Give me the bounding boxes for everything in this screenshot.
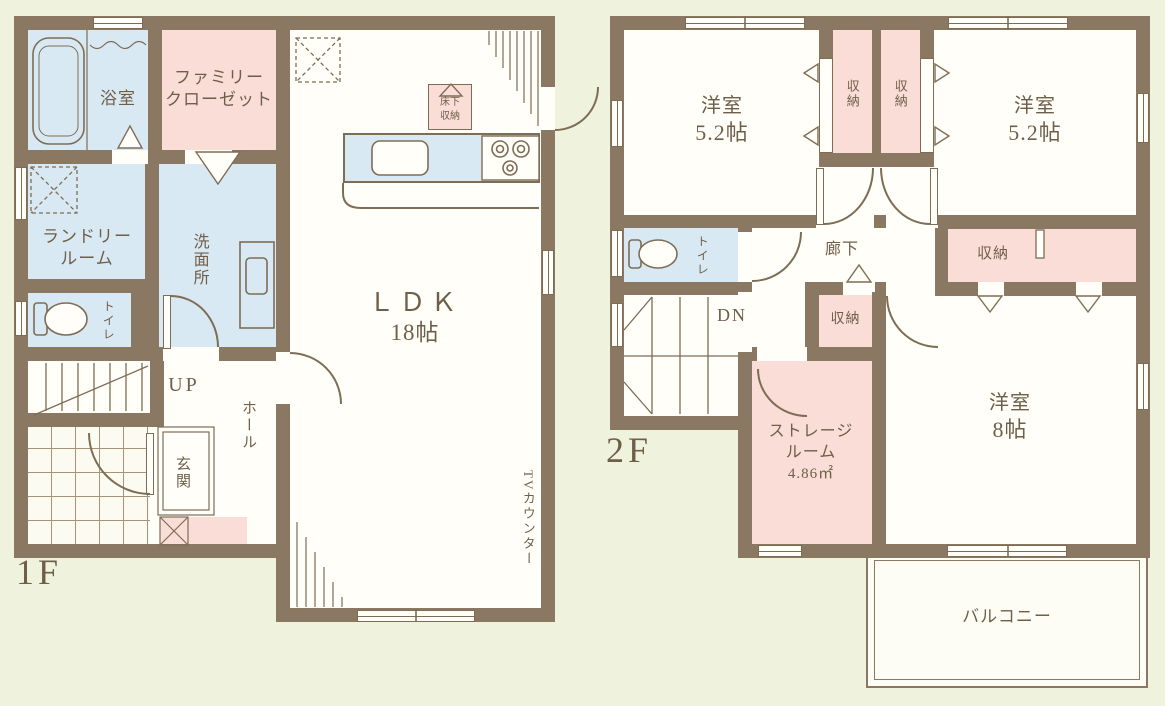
- closet-hall-label: 収納: [819, 310, 872, 330]
- family-closet-label-1: ファミリー: [162, 68, 276, 88]
- closet-a-label: 収納: [840, 56, 864, 132]
- bedroom-b-label-2: 5.2帖: [970, 120, 1100, 146]
- floor1-label: 1F: [16, 552, 106, 594]
- storage-room-label-1: ストレージ: [748, 422, 874, 442]
- toilet-icon-1f: [34, 303, 87, 335]
- toilet-icon-2f: [629, 240, 677, 268]
- hanger-rod: [1036, 230, 1044, 258]
- bedroom-a-label-1: 洋室: [657, 94, 787, 118]
- toilet-1f-label: トイレ: [97, 294, 119, 348]
- door-triangle-closet-c: [1076, 296, 1100, 312]
- ldk-label-1: ＬＤＫ: [340, 288, 490, 318]
- hatch-lines-top-right: [489, 31, 538, 126]
- sink-icon: [372, 141, 428, 175]
- counter-front-line: [343, 183, 539, 208]
- laundry-pan-icon: [31, 167, 77, 213]
- stairs-1f: [34, 363, 148, 415]
- door-triangle-closet-a: [804, 127, 818, 145]
- laundry-label-2: ルーム: [28, 248, 146, 270]
- entrance-label: 玄関: [170, 436, 194, 510]
- door-triangle-closet-hall: [847, 265, 871, 282]
- bedroom-a-label-2: 5.2帖: [657, 120, 787, 146]
- storage-room-label-2: ルーム: [748, 443, 874, 463]
- storage-room-label-3: 4.86㎡: [748, 464, 874, 484]
- floor-plan: 浴室 ファミリー クローゼット ランドリー ルーム 洗面所 トイレ UP ホール…: [0, 0, 1165, 706]
- stove-icon: [482, 136, 539, 180]
- shoe-cabinet-x: [160, 517, 188, 545]
- door-triangle-closet-b: [935, 64, 949, 82]
- closet-c-label: 収納: [950, 243, 1036, 265]
- stairs-dn-label: DN: [710, 304, 754, 328]
- underfloor-label-2: 収納: [428, 110, 472, 123]
- stairs-up-label: UP: [160, 372, 208, 398]
- bathtub: [33, 38, 84, 144]
- door-triangle-closet-b: [935, 127, 949, 145]
- underfloor-label-1: 床下: [428, 96, 472, 109]
- corridor-label: 廊下: [810, 240, 874, 260]
- washroom-label: 洗面所: [186, 212, 212, 308]
- washbasin-icon: [240, 242, 274, 328]
- family-closet-label-2: クローゼット: [162, 90, 276, 110]
- closet-b-label: 収納: [888, 56, 912, 132]
- bathroom-label: 浴室: [88, 88, 148, 110]
- floor2-label: 2F: [606, 430, 696, 472]
- door-triangle-closet-a: [804, 64, 818, 82]
- door-triangle-bathroom: [118, 126, 142, 148]
- tv-counter-label: TVカウンター: [513, 432, 543, 604]
- hatch-lines-bottom-left: [297, 522, 342, 607]
- toilet-2f-label: トイレ: [692, 231, 712, 281]
- hall-label: ホール: [236, 380, 260, 470]
- bedroom-b-label-1: 洋室: [970, 94, 1100, 118]
- bedroom-c-label-2: 8帖: [945, 417, 1075, 443]
- door-triangle-underfloor: [440, 84, 462, 96]
- laundry-label-1: ランドリー: [28, 226, 146, 248]
- ldk-dashed-square: [296, 38, 340, 82]
- door-triangle-family-closet: [196, 152, 240, 184]
- ldk-label-2: 18帖: [340, 320, 490, 346]
- balcony-label: バルコニー: [940, 605, 1074, 629]
- bedroom-c-label-1: 洋室: [945, 390, 1075, 416]
- door-triangle-closet-c: [978, 296, 1002, 312]
